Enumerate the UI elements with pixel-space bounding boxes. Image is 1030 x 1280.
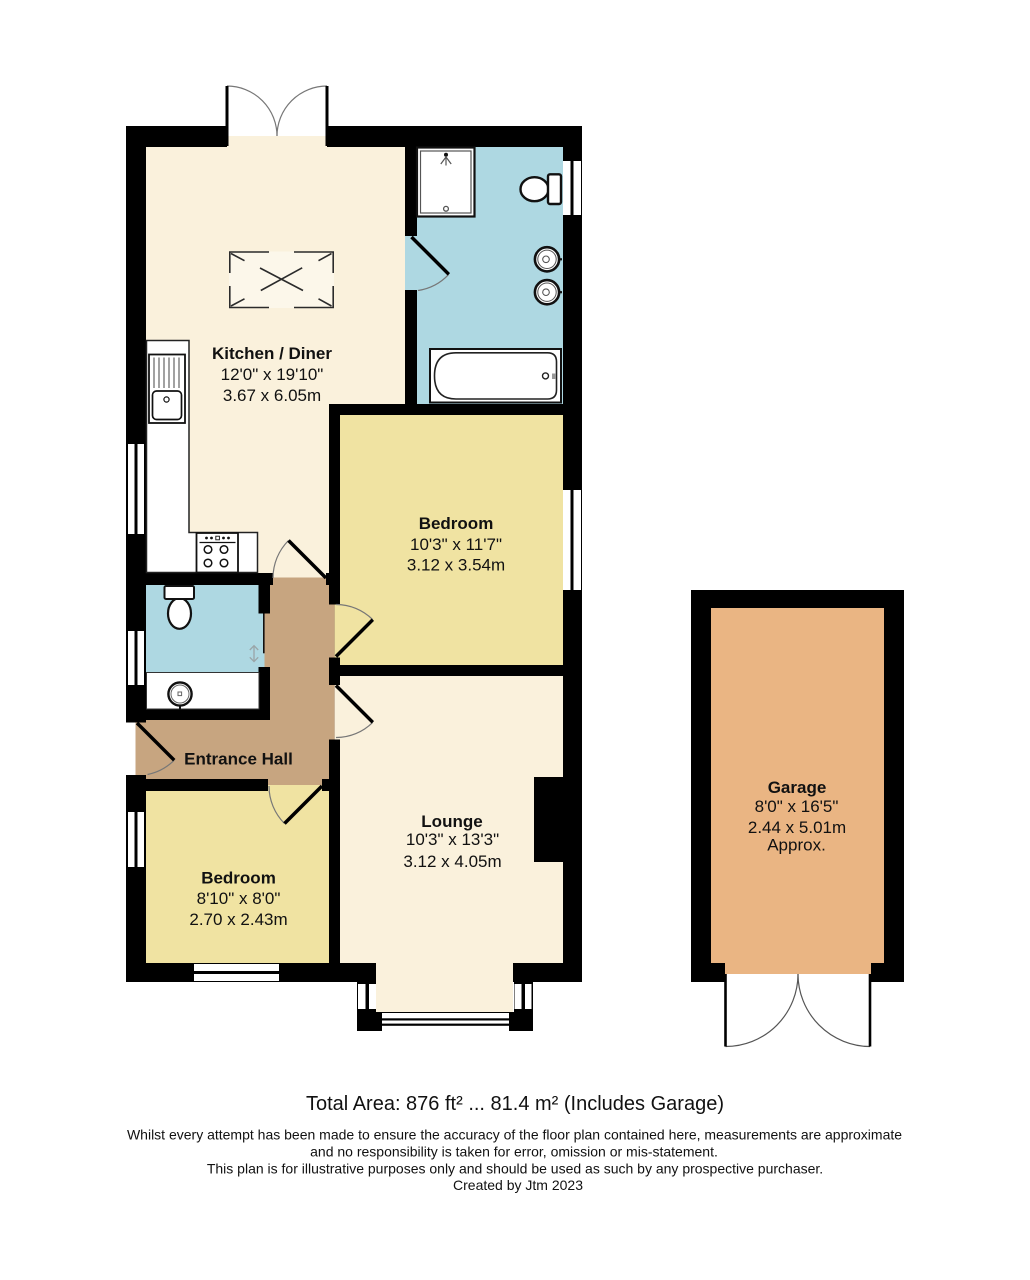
svg-text:3.12 x 3.54m: 3.12 x 3.54m (407, 556, 505, 575)
svg-text:3.12 x 4.05m: 3.12 x 4.05m (403, 852, 501, 871)
svg-text:8'0" x 16'5": 8'0" x 16'5" (755, 797, 839, 816)
svg-text:12'0" x 19'10": 12'0" x 19'10" (221, 365, 324, 384)
svg-text:Bedroom: Bedroom (201, 869, 276, 888)
svg-text:Lounge: Lounge (421, 812, 482, 831)
svg-text:Approx.: Approx. (767, 836, 826, 855)
svg-text:Garage: Garage (768, 778, 827, 797)
svg-text:Kitchen / Diner: Kitchen / Diner (212, 344, 332, 363)
svg-text:This plan is for illustrative: This plan is for illustrative purposes o… (207, 1161, 823, 1177)
svg-text:Bedroom: Bedroom (419, 514, 494, 533)
svg-text:8'10" x 8'0": 8'10" x 8'0" (197, 889, 281, 908)
svg-text:and no responsibility is taken: and no responsibility is taken for error… (310, 1144, 718, 1160)
svg-text:10'3" x 11'7": 10'3" x 11'7" (410, 535, 502, 554)
svg-text:Total Area: 876 ft² ... 81.4 m: Total Area: 876 ft² ... 81.4 m² (Include… (306, 1093, 724, 1115)
svg-text:Created by Jtm 2023: Created by Jtm 2023 (453, 1177, 583, 1193)
svg-text:2.44 x 5.01m: 2.44 x 5.01m (748, 818, 846, 837)
svg-text:2.70 x 2.43m: 2.70 x 2.43m (189, 910, 287, 929)
svg-text:3.67 x 6.05m: 3.67 x 6.05m (223, 386, 321, 405)
svg-text:10'3" x 13'3": 10'3" x 13'3" (406, 830, 499, 849)
svg-text:Entrance Hall: Entrance Hall (184, 750, 293, 769)
svg-text:Whilst every attempt has been: Whilst every attempt has been made to en… (127, 1127, 902, 1143)
